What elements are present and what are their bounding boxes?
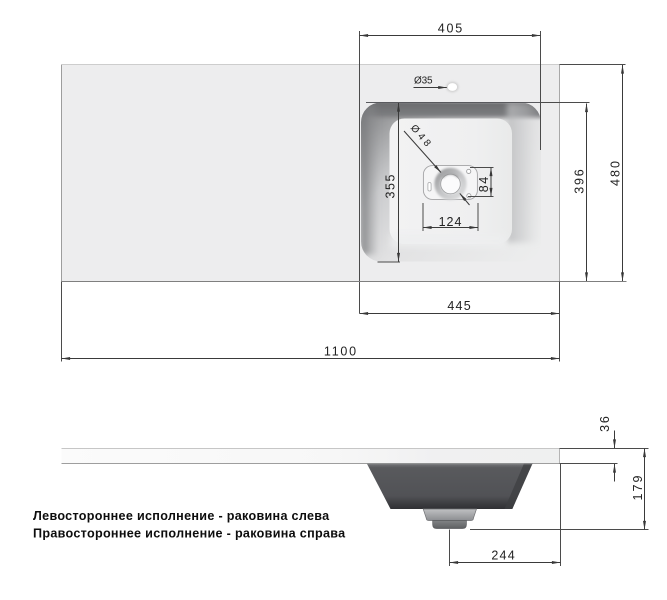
svg-text:Ø35: Ø35 — [414, 76, 433, 87]
svg-text:84: 84 — [477, 177, 491, 193]
svg-text:355: 355 — [384, 174, 398, 198]
svg-text:Правостороннее исполнение - ра: Правостороннее исполнение - раковина спр… — [33, 527, 346, 541]
svg-text:396: 396 — [573, 169, 587, 194]
svg-text:1100: 1100 — [324, 345, 356, 359]
svg-text:36: 36 — [598, 416, 612, 432]
svg-text:244: 244 — [491, 549, 514, 563]
svg-text:405: 405 — [438, 22, 463, 36]
svg-text:480: 480 — [609, 161, 623, 186]
svg-text:445: 445 — [447, 299, 470, 313]
svg-text:Левостороннее исполнение - рак: Левостороннее исполнение - раковина слев… — [33, 509, 330, 523]
svg-text:179: 179 — [631, 475, 645, 500]
svg-text:124: 124 — [439, 215, 462, 229]
